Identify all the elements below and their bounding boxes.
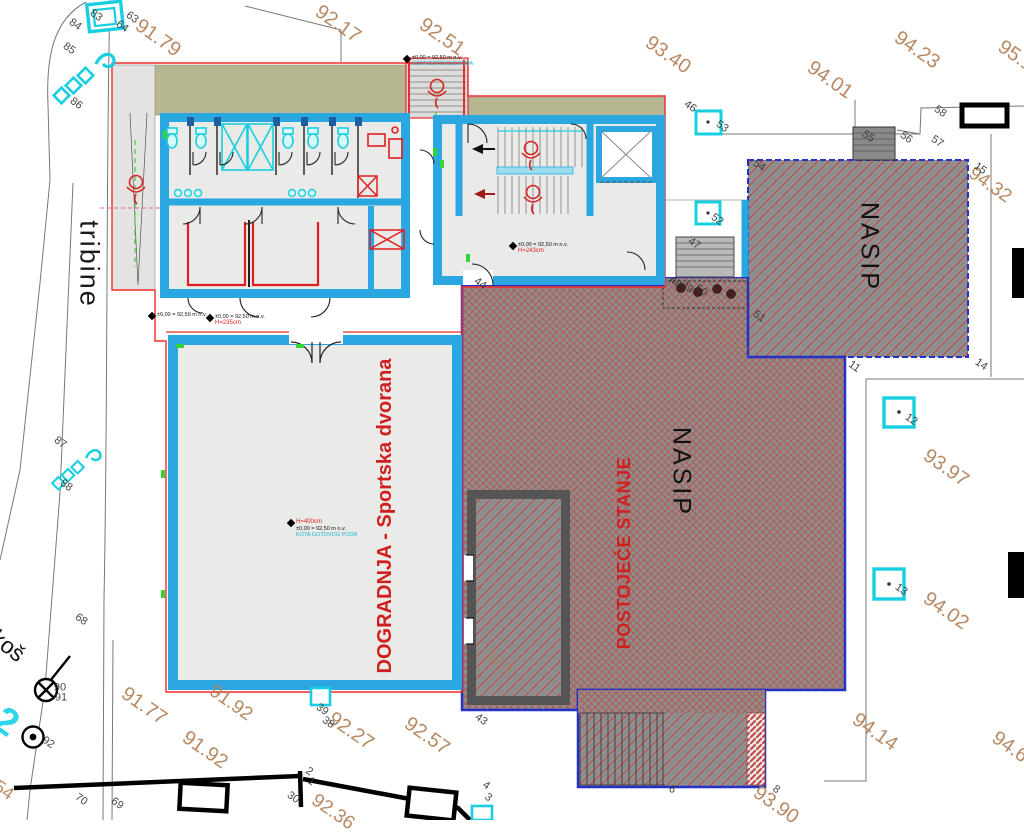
sports-hall — [168, 331, 462, 690]
label-dogradnja-hall: DOGRADNJA - Sportska dvorana — [375, 359, 395, 674]
spot-elevation: ±0,00 = 92,50 m n.v.KOTA GOTOVOG PODA — [412, 55, 473, 68]
label-tribine: tribine — [76, 220, 103, 308]
label-nasip-center: NASIP — [669, 427, 694, 517]
utility-pole-icon — [35, 656, 70, 701]
elevator — [599, 129, 655, 182]
left-wing — [160, 113, 454, 298]
window — [179, 783, 227, 811]
existing-buildings-bottom — [14, 771, 470, 820]
dark-ramp — [464, 495, 566, 701]
manhole-icon — [23, 727, 44, 748]
spot-elevation: H=400cm±0,00 = 92,50 m n.v.KOTA GOTOVOG … — [296, 519, 357, 539]
plan-linework — [0, 0, 1024, 820]
hall-door-gap — [289, 331, 343, 344]
label-existing-state: POSTOJEĆE STANJE — [615, 457, 633, 649]
spot-elevation: ±0,00 = 92,50 m n.v.H=243cm — [518, 242, 568, 255]
spot-elevation: ±0,00 = 92,50 m n.v. — [157, 312, 207, 318]
label-nasip-right: NASIP — [857, 202, 882, 292]
spot-elevation: ±0,00 = 92,50 m n.v.H=235cm — [215, 314, 265, 327]
site-plan-drawing: tribine DOGRADNJA - Sportska dvorana POS… — [0, 0, 1024, 820]
window — [407, 788, 457, 820]
ramp-strip — [100, 65, 162, 290]
building-top-right — [962, 105, 1007, 126]
